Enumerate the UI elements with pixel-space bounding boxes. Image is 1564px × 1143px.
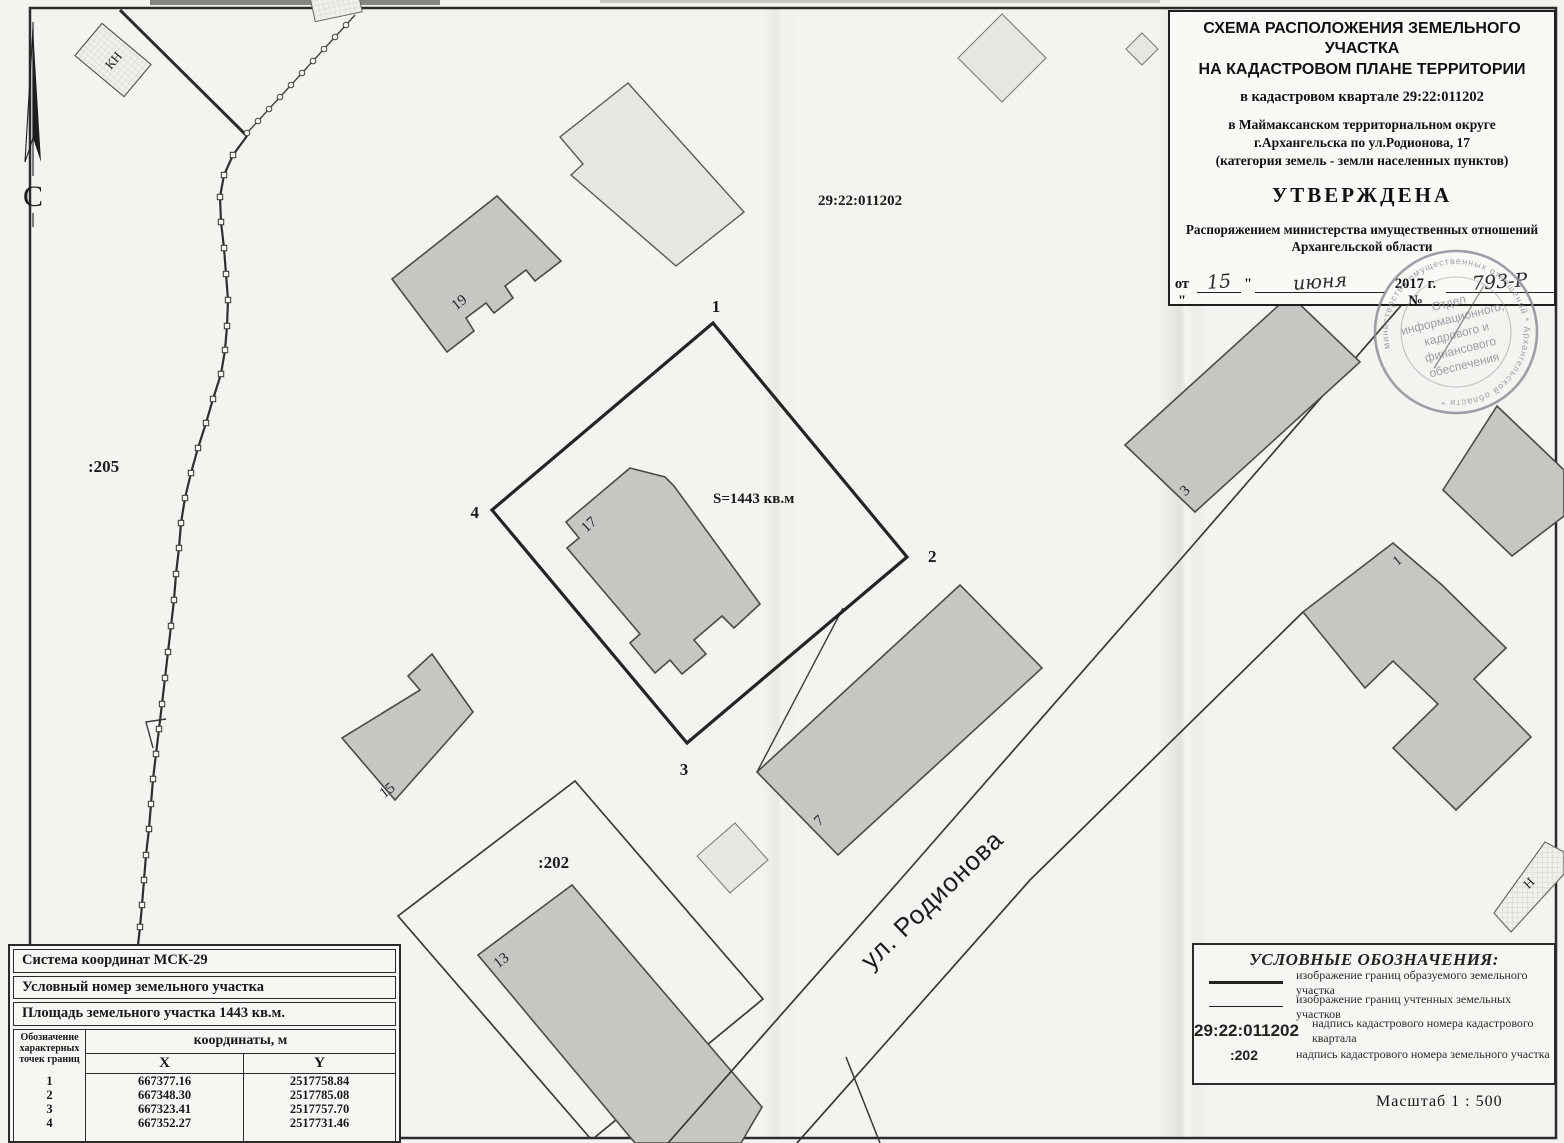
scheme-heading: СХЕМА РАСПОЛОЖЕНИЯ ЗЕМЕЛЬНОГО УЧАСТКА НА…	[1176, 19, 1548, 80]
x-value-cell: 667377.16	[86, 1074, 244, 1088]
heading-line-1: СХЕМА РАСПОЛОЖЕНИЯ ЗЕМЕЛЬНОГО УЧАСТКА	[1176, 19, 1548, 60]
parcel-205-label: :205	[88, 457, 119, 476]
cadastral-scheme-page: С КН 19 15 13	[0, 0, 1564, 1143]
order-line-1: Распоряжением министерства имущественных…	[1170, 221, 1554, 238]
doc-number-handwritten: 793-Р	[1472, 271, 1529, 294]
quarter-line: в кадастровом квартале 29:22:011202	[1170, 89, 1554, 106]
points-coordinates-grid: Обозначение характерных точек границ коо…	[13, 1029, 396, 1143]
location-line-1: в Маймаксанском территориальном округе	[1170, 116, 1554, 134]
y-value-cell: 2517757.70	[244, 1102, 395, 1116]
x-column-header: X	[86, 1054, 244, 1074]
point-2-label: 2	[928, 547, 937, 566]
approved-word: УТВЕРЖДЕНА	[1170, 183, 1554, 208]
point-number-cell: 3	[14, 1102, 86, 1116]
y-column-header: Y	[244, 1054, 395, 1074]
thin-line-symbol	[1209, 1006, 1283, 1008]
order-block: Распоряжением министерства имущественных…	[1170, 221, 1554, 255]
point-4-label: 4	[471, 503, 480, 522]
legend-item-quarter-number: 29:22:011202 надпись кадастрового номера…	[1194, 1019, 1554, 1042]
coordinate-system-row: Система координат МСК-29	[13, 949, 396, 973]
order-line-2: Архангельской области	[1170, 238, 1554, 255]
x-value-cell: 667348.30	[86, 1088, 244, 1102]
date-line: от " 15 " июня 2017 г. № 793-Р	[1170, 273, 1554, 310]
point-3-label: 3	[680, 760, 689, 779]
date-month-handwritten: июня	[1292, 271, 1347, 294]
location-block: в Маймаксанском территориальном округе г…	[1170, 116, 1554, 169]
y-value-cell: 2517785.08	[244, 1088, 395, 1102]
legend-item-label: надпись кадастрового номера кадастрового…	[1312, 1016, 1554, 1046]
area-label: S=1443 кв.м	[713, 491, 794, 507]
date-quote: "	[1244, 276, 1252, 293]
quarter-number-symbol: 29:22:011202	[1194, 1021, 1299, 1041]
filler-cell	[14, 1130, 86, 1143]
scan-edge-artifact	[150, 0, 440, 5]
parcel-number-symbol: :202	[1230, 1047, 1258, 1063]
title-block: СХЕМА РАСПОЛОЖЕНИЯ ЗЕМЕЛЬНОГО УЧАСТКА НА…	[1168, 10, 1556, 306]
parcel-area-row: Площадь земельного участка 1443 кв.м.	[13, 1002, 396, 1026]
thick-line-symbol	[1209, 981, 1283, 984]
legend-item-label: надпись кадастрового номера земельного у…	[1296, 1047, 1550, 1062]
date-year: 2017 г. №	[1388, 276, 1443, 310]
date-day-handwritten: 15	[1206, 273, 1231, 294]
x-value-cell: 667323.41	[86, 1102, 244, 1116]
heading-line-2: НА КАДАСТРОВОМ ПЛАНЕ ТЕРРИТОРИИ	[1176, 60, 1548, 80]
point-number-cell: 4	[14, 1116, 86, 1130]
paper-fold	[762, 9, 796, 1137]
coordinate-rows: 1 667377.16 2517758.84 2 667348.30 25177…	[14, 1074, 395, 1143]
scale-label: Масштаб 1 : 500	[1376, 1093, 1503, 1111]
point-1-label: 1	[712, 297, 721, 316]
x-value-cell: 667352.27	[86, 1116, 244, 1130]
legend-box: УСЛОВНЫЕ ОБОЗНАЧЕНИЯ: изображение границ…	[1192, 943, 1556, 1085]
points-column-header: Обозначение характерных точек границ	[14, 1030, 86, 1074]
coordinates-table: Система координат МСК-29 Условный номер …	[8, 944, 401, 1143]
parcel-202-label: :202	[538, 853, 569, 872]
filler-cell	[86, 1130, 244, 1143]
date-prefix: от "	[1170, 276, 1194, 310]
y-value-cell: 2517731.46	[244, 1116, 395, 1130]
y-value-cell: 2517758.84	[244, 1074, 395, 1088]
filler-cell	[244, 1130, 395, 1143]
north-label: С	[23, 180, 43, 213]
location-line-2: г.Архангельска по ул.Родионова, 17	[1170, 134, 1554, 152]
category-line: (категория земель - земли населенных пун…	[1170, 152, 1554, 170]
quarter-number-label: 29:22:011202	[818, 193, 902, 209]
legend-item-parcel-number: :202 надпись кадастрового номера земельн…	[1194, 1043, 1554, 1066]
parcel-number-row: Условный номер земельного участка	[13, 976, 396, 1000]
point-number-cell: 1	[14, 1074, 86, 1088]
point-number-cell: 2	[14, 1088, 86, 1102]
scan-edge-artifact	[600, 0, 1160, 3]
coords-column-header: координаты, м	[86, 1030, 395, 1054]
